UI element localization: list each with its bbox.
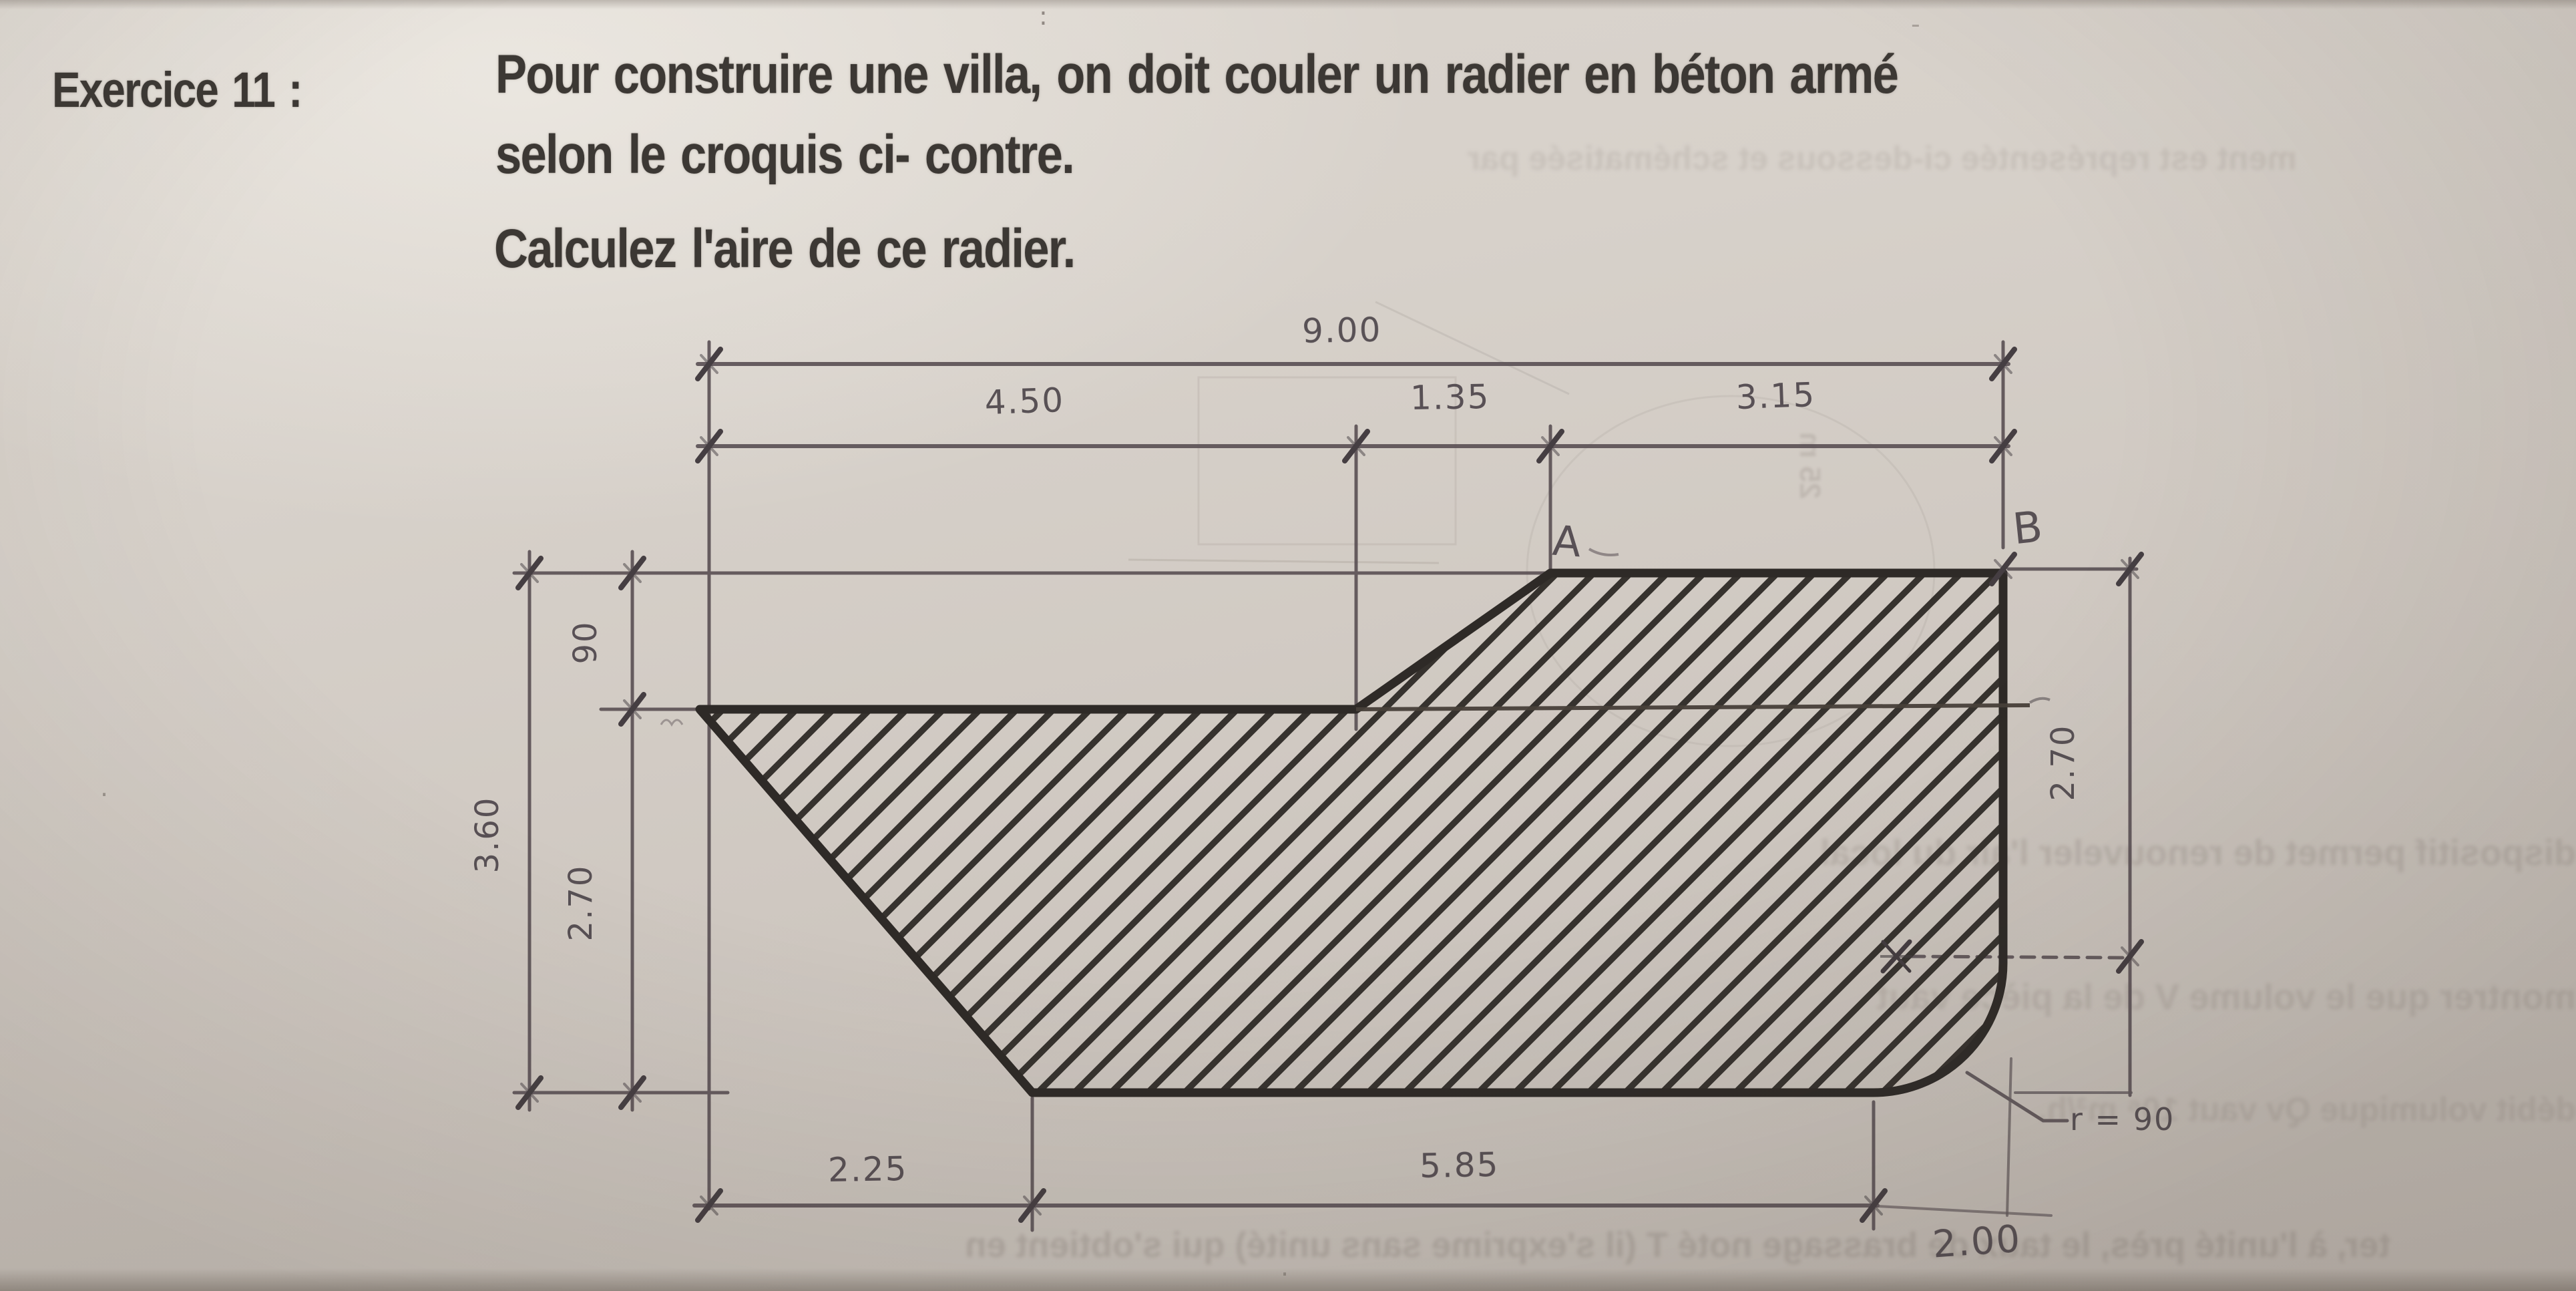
- dim-label-right-2-70: 2.70: [2045, 725, 2082, 801]
- dim-label-4-50: 4.50: [984, 381, 1065, 422]
- dim-label-left-2-70: 2.70: [562, 865, 600, 942]
- extension-right-bottom: [2007, 1059, 2011, 1216]
- radius-label: r = 90: [2070, 1101, 2175, 1137]
- dim-label-3-60: 3.60: [469, 797, 506, 874]
- pencil-squiggle: [661, 720, 682, 725]
- point-label-b: B: [2010, 502, 2046, 554]
- dim-label-2-00: 2.00: [1931, 1217, 2022, 1266]
- scanned-page: Exercice 11 : Pour construire une villa,…: [0, 0, 2576, 1291]
- point-label-a: A: [1551, 516, 1584, 567]
- dim-label-5-85: 5.85: [1420, 1145, 1500, 1185]
- dim-label-1-35: 1.35: [1410, 377, 1490, 417]
- dim-label-90: 90: [567, 620, 604, 664]
- figure-sketch: 9.00 4.50 1.35 3.15 90 2.70 3.60 2.70 2.…: [0, 0, 2576, 1291]
- radius-leader-line: [1967, 1073, 2067, 1121]
- radier-outline: [700, 573, 2003, 1093]
- dim-label-2-25: 2.25: [828, 1149, 908, 1189]
- interior-line-end-mark: [2030, 699, 2050, 703]
- point-a-squiggle: [1589, 549, 1619, 555]
- dim-label-3-15: 3.15: [1735, 375, 1816, 417]
- dim-label-total-width: 9.00: [1302, 311, 1382, 351]
- dim-line-bottom-tail: [1878, 1206, 2051, 1216]
